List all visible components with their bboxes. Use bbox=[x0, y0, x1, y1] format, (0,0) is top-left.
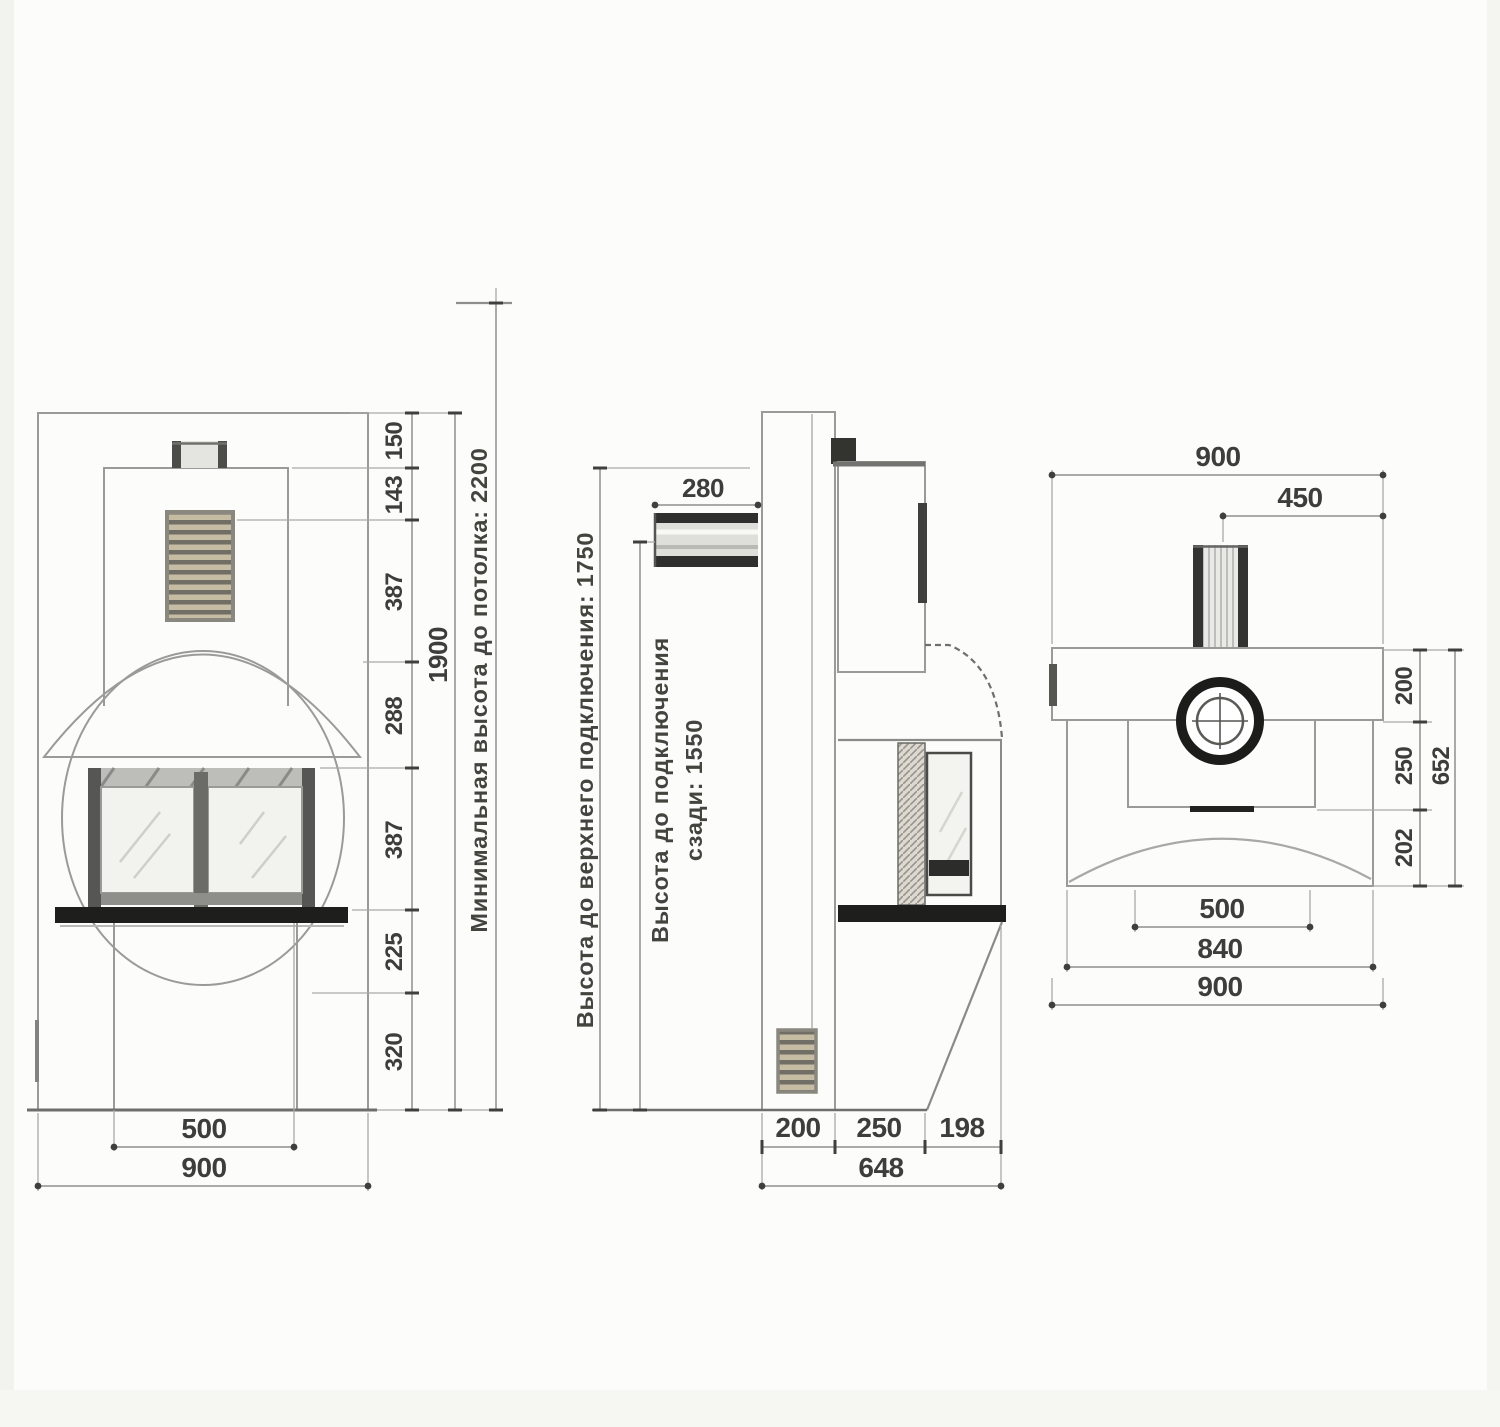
side-vent-grille bbox=[778, 1030, 816, 1092]
front-door-glass-right bbox=[208, 787, 302, 893]
dim-250-side-label: 250 bbox=[856, 1112, 901, 1143]
dim-1900-label: 1900 bbox=[423, 627, 453, 683]
dim-500-front-label: 500 bbox=[181, 1113, 226, 1144]
dim-900-base-label: 900 bbox=[1197, 971, 1242, 1002]
rear-connection-note-line2: сзади: 1550 bbox=[681, 719, 707, 861]
rear-connection-note-line1: Высота до подключения bbox=[647, 637, 673, 943]
front-vent-grille bbox=[167, 512, 233, 620]
dim-225-label: 225 bbox=[381, 933, 408, 972]
dim-450-label: 450 bbox=[1277, 482, 1322, 513]
dim-202-top-label: 202 bbox=[1391, 829, 1418, 868]
front-dimensions: 150 143 387 288 387 225 320 1900 Минимал… bbox=[35, 288, 512, 1191]
scan-margins bbox=[0, 0, 1500, 1427]
front-extension-lines bbox=[237, 413, 503, 1110]
top-panel-end-cap bbox=[1049, 664, 1057, 706]
side-base-slope bbox=[927, 922, 1002, 1110]
front-door-glass-left bbox=[101, 787, 194, 893]
ceiling-height-note: Минимальная высота до потолка: 2200 bbox=[466, 447, 492, 932]
dim-900-front-label: 900 bbox=[181, 1152, 226, 1183]
front-doors bbox=[88, 768, 315, 907]
dim-150-label: 150 bbox=[381, 422, 408, 461]
front-view: 150 143 387 288 387 225 320 1900 Минимал… bbox=[27, 288, 512, 1191]
dim-648-label: 648 bbox=[858, 1152, 903, 1183]
side-view: 280 Высота до верхнего подключения: 1750… bbox=[572, 412, 1006, 1190]
front-structure bbox=[27, 413, 377, 1110]
top-flue-outlet bbox=[1181, 682, 1259, 760]
dim-387-upper-label: 387 bbox=[381, 573, 408, 612]
top-flue-pipe bbox=[1193, 545, 1248, 648]
top-bottom-dims: 500 840 900 bbox=[1049, 890, 1387, 1010]
dim-200-top-label: 200 bbox=[1391, 667, 1418, 706]
top-front-curve bbox=[1069, 839, 1371, 882]
dim-200-side-label: 200 bbox=[775, 1112, 820, 1143]
dim-652-label: 652 bbox=[1428, 747, 1455, 786]
dim-198-side-label: 198 bbox=[939, 1112, 984, 1143]
front-hearth-plate bbox=[55, 907, 348, 923]
side-canopy-curve bbox=[925, 645, 1002, 738]
drawing-canvas: 150 143 387 288 387 225 320 1900 Минимал… bbox=[0, 0, 1500, 1427]
dim-840-label: 840 bbox=[1197, 933, 1242, 964]
top-structure bbox=[1049, 545, 1383, 886]
top-view: 900 450 200 250 202 652 500 bbox=[1049, 441, 1464, 1010]
side-hearth-plate bbox=[838, 905, 1006, 922]
fireplace-dimension-drawing: 150 143 387 288 387 225 320 1900 Минимал… bbox=[0, 0, 1500, 1427]
dim-280-label: 280 bbox=[682, 473, 724, 503]
dim-143-label: 143 bbox=[381, 476, 408, 515]
front-pedestal bbox=[114, 923, 297, 1110]
front-bottom-dims: 500 900 bbox=[35, 923, 372, 1191]
side-top-connection-stub bbox=[831, 438, 856, 464]
dim-250-top-label: 250 bbox=[1391, 747, 1418, 786]
upper-connection-note: Высота до верхнего подключения: 1750 bbox=[572, 532, 598, 1029]
front-canopy bbox=[44, 655, 360, 758]
side-wall-chase bbox=[762, 412, 835, 1110]
dim-387-lower-label: 387 bbox=[381, 821, 408, 860]
side-hood bbox=[838, 462, 925, 672]
side-hood-front-band bbox=[918, 503, 927, 603]
dim-288-label: 288 bbox=[381, 697, 408, 736]
dim-320-label: 320 bbox=[381, 1033, 408, 1072]
front-flue-pipe bbox=[172, 441, 227, 468]
side-rear-pipe bbox=[655, 513, 758, 567]
dim-900-top-label: 900 bbox=[1195, 441, 1240, 472]
side-door-frame bbox=[898, 743, 925, 905]
dim-500-top-label: 500 bbox=[1199, 893, 1244, 924]
